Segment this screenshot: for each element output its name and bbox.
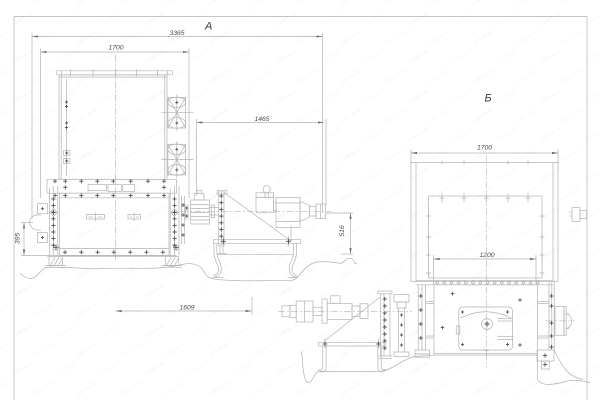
svg-text:А: А — [204, 21, 212, 33]
svg-text:516: 516 — [339, 225, 346, 237]
svg-text:1700: 1700 — [108, 45, 123, 52]
svg-text:Б: Б — [485, 93, 492, 105]
svg-text:1465: 1465 — [254, 116, 269, 123]
svg-text:3365: 3365 — [169, 30, 184, 37]
svg-text:1200: 1200 — [479, 252, 494, 259]
svg-text:1700: 1700 — [477, 145, 492, 152]
svg-text:395: 395 — [15, 233, 22, 245]
svg-text:1609: 1609 — [179, 305, 194, 312]
